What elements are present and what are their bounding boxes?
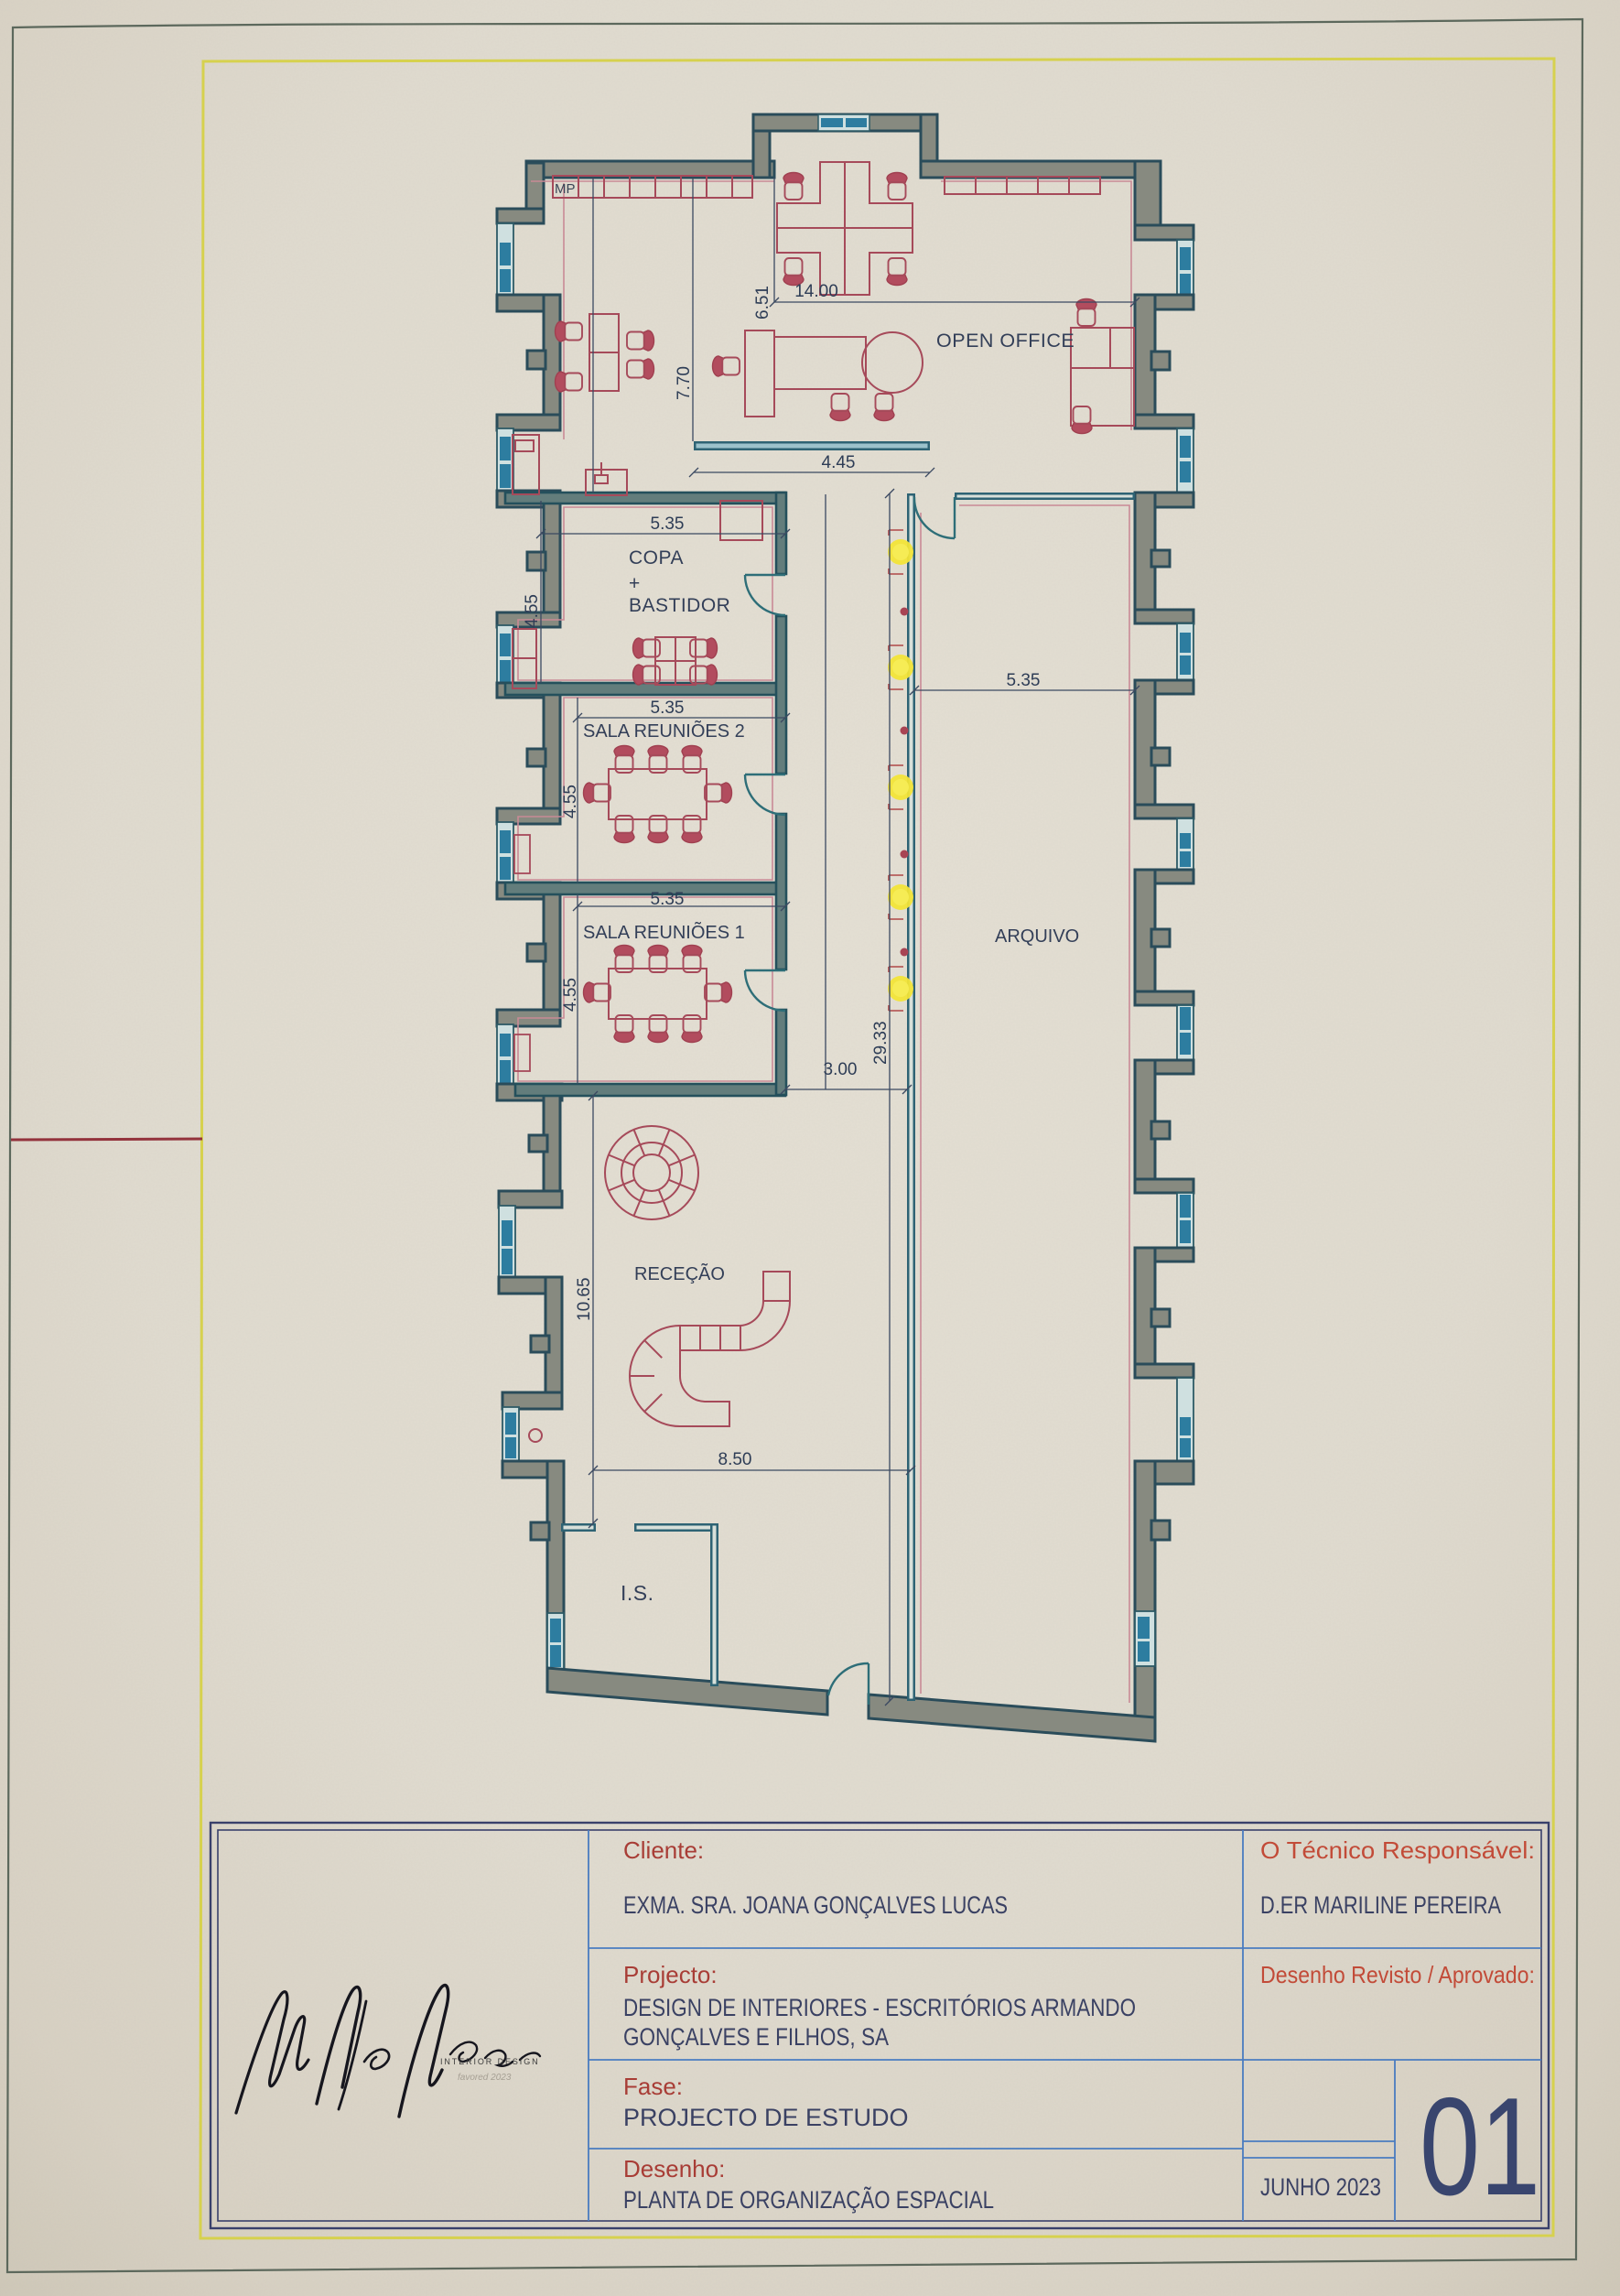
svg-text:JUNHO 2023: JUNHO 2023 [1260, 2173, 1381, 2201]
svg-text:MP: MP [555, 181, 576, 197]
svg-text:4.55: 4.55 [561, 978, 580, 1012]
svg-text:RECEÇÃO: RECEÇÃO [634, 1262, 725, 1284]
svg-text:PROJECTO DE ESTUDO: PROJECTO DE ESTUDO [623, 2104, 909, 2131]
svg-text:14.00: 14.00 [794, 282, 838, 301]
svg-text:OPEN OFFICE: OPEN OFFICE [936, 330, 1075, 352]
svg-text:COPA: COPA [629, 547, 684, 569]
svg-text:5.35: 5.35 [1007, 671, 1041, 690]
svg-text:4.45: 4.45 [822, 453, 856, 472]
svg-text:6.51: 6.51 [753, 286, 772, 319]
svg-text:+: + [629, 573, 641, 594]
svg-text:INTERIOR DESIGN: INTERIOR DESIGN [440, 2057, 540, 2066]
svg-text:EXMA. SRA. JOANA GONÇALVES LUC: EXMA. SRA. JOANA GONÇALVES LUCAS [623, 1891, 1008, 1919]
svg-text:Desenho Revisto / Aprovado:: Desenho Revisto / Aprovado: [1260, 1961, 1535, 1988]
svg-text:GONÇALVES E FILHOS, SA: GONÇALVES E FILHOS, SA [623, 2023, 889, 2051]
svg-text:01: 01 [1420, 2069, 1540, 2225]
svg-text:7.70: 7.70 [675, 366, 694, 400]
svg-text:DESIGN DE INTERIORES - ESCRITÓ: DESIGN DE INTERIORES - ESCRITÓRIOS ARMAN… [623, 1993, 1136, 2021]
svg-text:O Técnico Responsável:: O Técnico Responsável: [1260, 1836, 1535, 1864]
svg-text:I.S.: I.S. [621, 1581, 654, 1605]
svg-text:8.50: 8.50 [718, 1450, 752, 1469]
svg-text:5.35: 5.35 [651, 514, 685, 534]
svg-text:Cliente:: Cliente: [623, 1836, 704, 1864]
svg-text:favored 2023: favored 2023 [458, 2073, 512, 2083]
svg-text:29.33: 29.33 [871, 1021, 891, 1065]
svg-text:4.55: 4.55 [561, 785, 580, 818]
svg-text:D.ER MARILINE PEREIRA: D.ER MARILINE PEREIRA [1260, 1891, 1501, 1919]
svg-text:10.65: 10.65 [575, 1277, 594, 1321]
svg-text:5.35: 5.35 [651, 699, 685, 718]
svg-text:Desenho:: Desenho: [623, 2155, 725, 2182]
svg-text:BASTIDOR: BASTIDOR [629, 595, 730, 616]
svg-text:3.00: 3.00 [824, 1060, 858, 1079]
svg-text:4.55: 4.55 [523, 594, 542, 628]
svg-text:PLANTA DE ORGANIZAÇÃO ESPACIAL: PLANTA DE ORGANIZAÇÃO ESPACIAL [623, 2185, 994, 2214]
svg-text:ARQUIVO: ARQUIVO [995, 926, 1079, 947]
svg-text:SALA REUNIÕES 1: SALA REUNIÕES 1 [583, 921, 745, 943]
svg-text:SALA REUNIÕES 2: SALA REUNIÕES 2 [583, 720, 745, 742]
svg-text:Fase:: Fase: [623, 2073, 683, 2100]
svg-text:5.35: 5.35 [651, 890, 685, 909]
svg-text:Projecto:: Projecto: [623, 1961, 718, 1988]
